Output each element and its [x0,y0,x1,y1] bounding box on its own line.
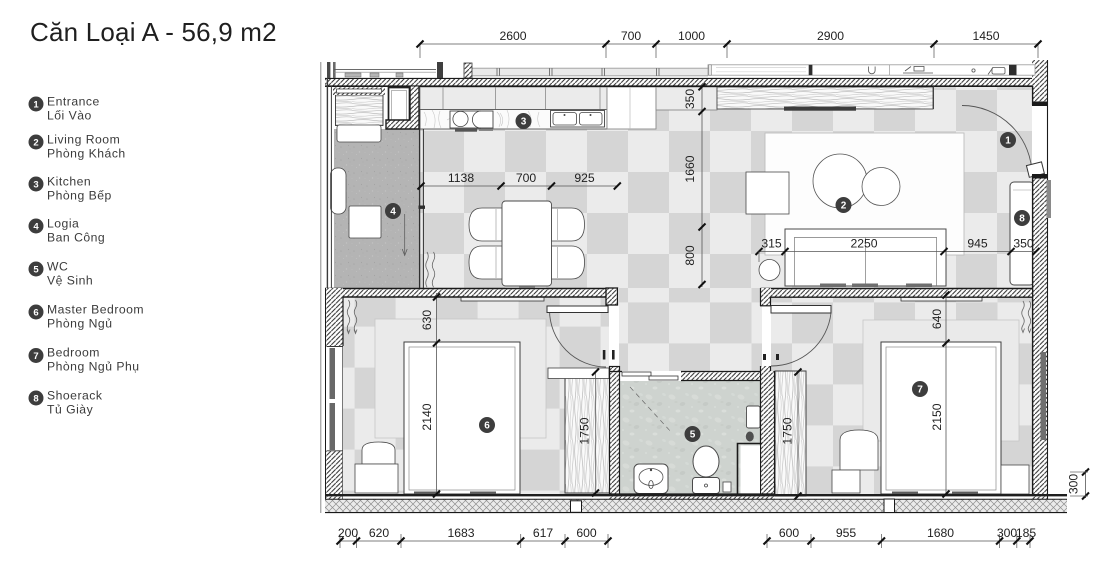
svg-text:700: 700 [516,171,537,185]
svg-text:Entrance: Entrance [47,95,100,109]
svg-text:1450: 1450 [972,29,999,43]
svg-text:350: 350 [683,89,697,110]
svg-text:8: 8 [33,393,38,404]
svg-text:300: 300 [997,526,1018,540]
svg-text:800: 800 [683,245,697,266]
svg-text:4: 4 [390,207,396,218]
svg-text:315: 315 [761,237,782,251]
svg-text:5: 5 [690,430,696,441]
svg-text:Vệ Sinh: Vệ Sinh [47,274,93,288]
svg-text:Phòng Bếp: Phòng Bếp [47,189,112,203]
svg-text:5: 5 [33,264,39,275]
svg-text:617: 617 [533,526,554,540]
svg-text:2900: 2900 [817,29,844,43]
svg-text:3: 3 [33,179,38,190]
svg-text:Lối Vào: Lối Vào [47,109,92,123]
svg-text:1680: 1680 [927,526,954,540]
svg-text:Living Room: Living Room [47,133,120,147]
svg-text:1683: 1683 [447,526,474,540]
svg-text:6: 6 [484,421,490,432]
svg-text:945: 945 [967,237,988,251]
svg-text:Bedroom: Bedroom [47,346,100,360]
svg-text:Tủ Giày: Tủ Giày [47,403,94,417]
svg-text:700: 700 [621,29,642,43]
svg-text:Phòng Khách: Phòng Khách [47,147,126,161]
svg-text:1750: 1750 [578,417,592,444]
svg-text:1000: 1000 [678,29,705,43]
svg-text:2: 2 [33,137,38,148]
svg-text:200: 200 [338,526,359,540]
svg-text:1: 1 [33,99,39,110]
svg-text:7: 7 [917,385,923,396]
svg-text:Master Bedroom: Master Bedroom [47,303,144,317]
svg-text:8: 8 [1019,214,1025,225]
svg-text:2250: 2250 [850,237,877,251]
svg-text:Ban Công: Ban Công [47,231,105,245]
svg-text:1660: 1660 [683,155,697,182]
svg-text:Logia: Logia [47,217,79,231]
svg-text:600: 600 [779,526,800,540]
svg-text:640: 640 [930,309,944,330]
svg-text:3: 3 [521,117,527,128]
svg-text:620: 620 [369,526,390,540]
svg-text:630: 630 [420,310,434,331]
svg-text:Shoerack: Shoerack [47,389,103,403]
svg-text:185: 185 [1016,526,1037,540]
svg-text:1: 1 [1005,136,1011,147]
svg-text:600: 600 [576,526,597,540]
svg-text:1750: 1750 [781,417,795,444]
svg-text:Phòng Ngủ: Phòng Ngủ [47,317,113,331]
svg-text:2140: 2140 [420,403,434,430]
svg-text:Căn Loại A - 56,9 m2: Căn Loại A - 56,9 m2 [30,17,277,47]
svg-text:350: 350 [1013,237,1034,251]
svg-text:4: 4 [33,221,39,232]
svg-text:1138: 1138 [448,171,474,185]
svg-text:2150: 2150 [930,403,944,430]
svg-text:300: 300 [1067,474,1081,495]
svg-text:2600: 2600 [499,29,526,43]
svg-text:7: 7 [33,351,38,362]
svg-text:925: 925 [574,171,595,185]
svg-text:2: 2 [841,201,847,212]
svg-text:Kitchen: Kitchen [47,175,91,189]
svg-text:6: 6 [33,307,38,318]
svg-text:WC: WC [47,260,68,274]
svg-text:Phòng Ngủ Phụ: Phòng Ngủ Phụ [47,360,140,374]
svg-text:955: 955 [836,526,857,540]
